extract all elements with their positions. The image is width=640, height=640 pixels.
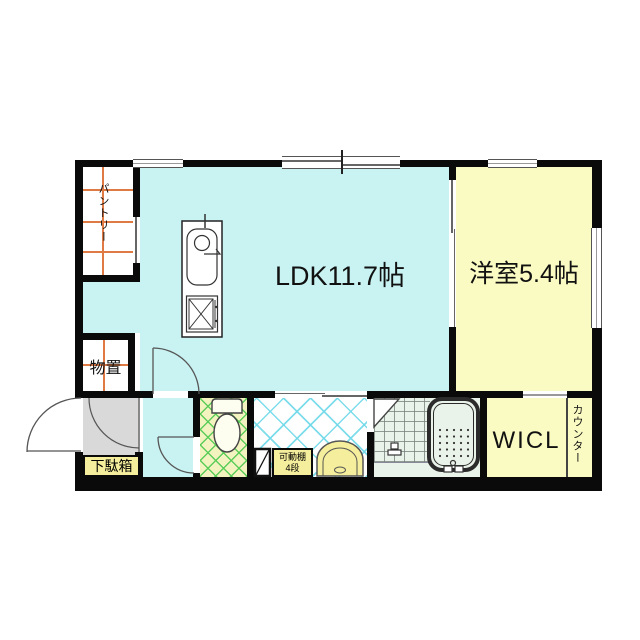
entrance-door-swing <box>27 398 81 452</box>
fixtures-layer <box>0 0 640 640</box>
storage-label: 物置 <box>83 355 128 377</box>
floor-plan: 下駄箱 可動棚 4段 <box>0 0 640 640</box>
kitchen-counter <box>182 214 222 337</box>
wicl-label: WICL <box>487 427 566 455</box>
ldk-door-swing <box>153 348 199 394</box>
western-room-label: 洋室5.4帖 <box>456 256 592 288</box>
washbasin <box>317 441 363 476</box>
bathroom-fixtures <box>374 399 478 472</box>
kitchen-sink <box>187 229 217 285</box>
bathtub <box>429 399 478 470</box>
pipe-shaft <box>255 449 270 476</box>
genkan-door-swing <box>89 398 139 448</box>
toilet-fixture <box>212 399 242 452</box>
shower-mixer <box>388 450 401 455</box>
counter-label: カウンター <box>569 404 585 476</box>
bathtub-dots <box>439 429 469 457</box>
toilet-door-swing <box>158 437 194 473</box>
bathtub-faucet <box>451 461 456 466</box>
bath-folding-door <box>374 399 399 427</box>
ldk-label: LDK11.7帖 <box>240 256 440 290</box>
pantry-label: パントリー <box>95 183 111 279</box>
